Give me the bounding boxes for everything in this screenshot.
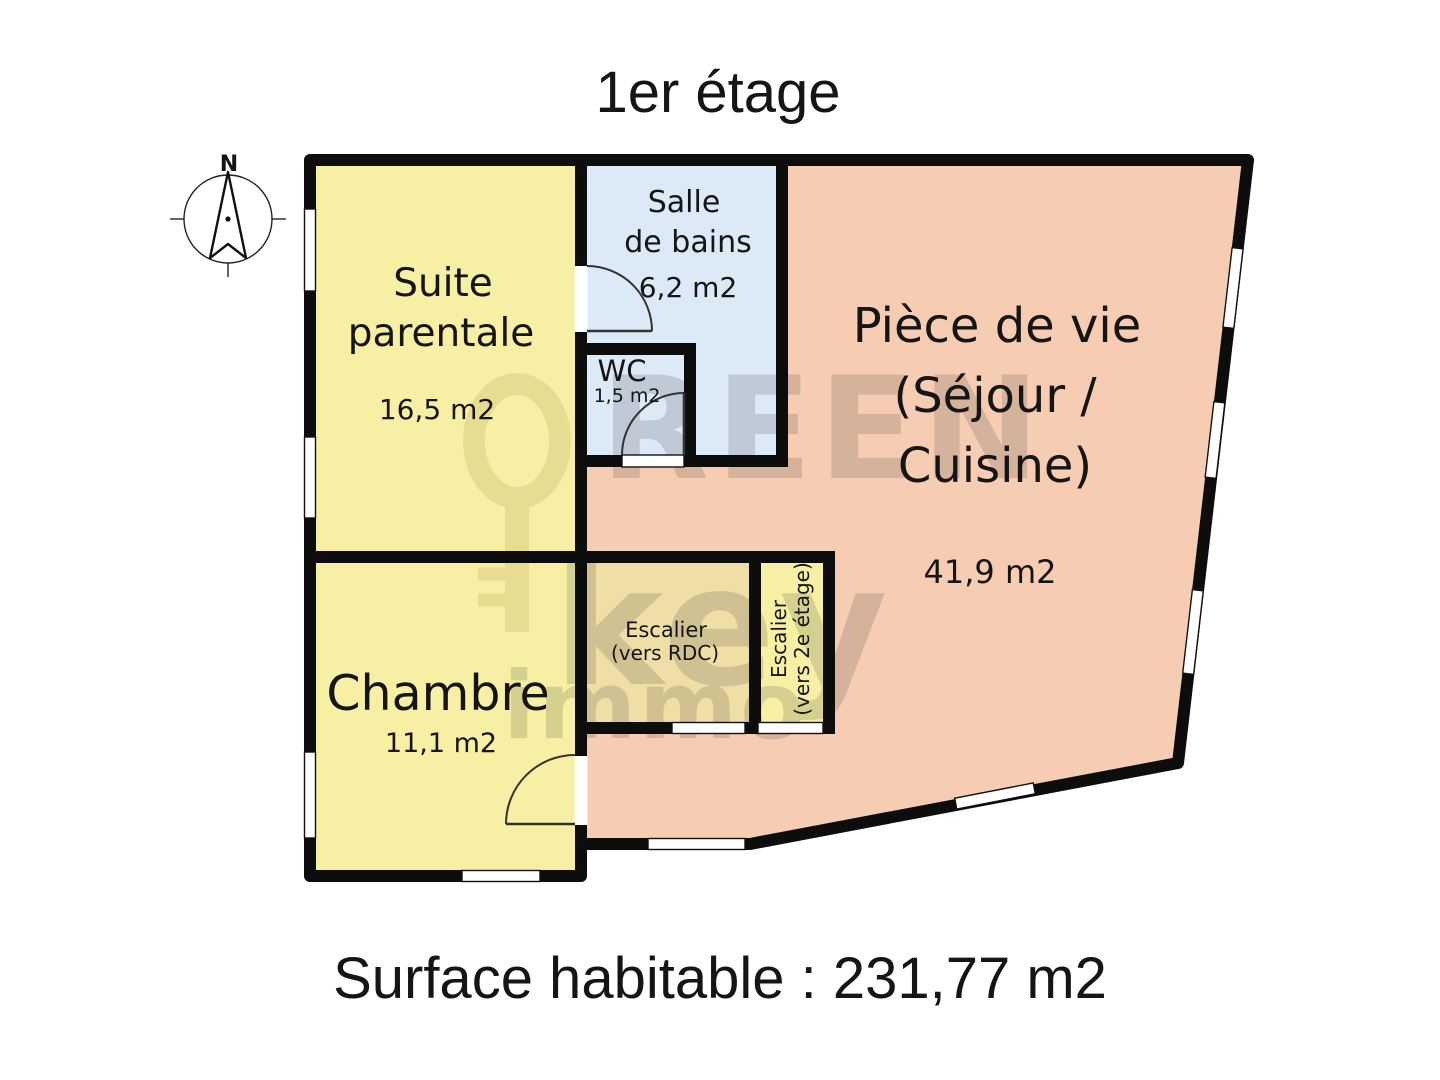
label-chambre-area: 11,1 m2 — [385, 728, 497, 759]
door-gap-salle-de-bains — [575, 266, 588, 332]
label-suite-area: 16,5 m2 — [379, 393, 495, 426]
surface-total-label: Surface habitable : 231,77 m2 — [333, 946, 1107, 1011]
label-escalier-2e-line1: Escalier — [767, 599, 791, 678]
label-suite-line1: Suite — [393, 261, 493, 306]
compass-north-label: N — [220, 152, 238, 177]
window-suite-left-1 — [305, 209, 316, 291]
label-piece-area: 41,9 m2 — [924, 553, 1057, 591]
label-piece-line3: Cuisine) — [898, 438, 1092, 494]
opening-escalier-2e — [758, 723, 823, 734]
compass-center-dot — [225, 216, 230, 221]
compass: N — [170, 152, 286, 277]
label-escalier-2e-line2: (vers 2e étage) — [790, 562, 814, 716]
window-suite-left-2 — [305, 437, 316, 518]
north-arrow-icon — [210, 172, 246, 258]
window-chambre-left — [305, 752, 316, 838]
label-bains-area: 6,2 m2 — [639, 271, 738, 304]
window-chambre-bottom — [462, 871, 540, 882]
label-escalier-rdc-line2: (vers RDC) — [611, 641, 719, 665]
window-piece-bottom — [648, 839, 745, 850]
label-escalier-rdc-line1: Escalier — [625, 618, 707, 642]
floorplan-canvas: REEN key immo — [0, 0, 1440, 1080]
label-piece-line2: (Séjour / — [893, 368, 1097, 424]
opening-escalier-rdc — [672, 723, 745, 734]
page-title: 1er étage — [595, 60, 840, 125]
door-gap-chambre — [575, 756, 588, 825]
label-piece-line1: Pièce de vie — [853, 298, 1141, 354]
floorplan-page: REEN key immo — [0, 0, 1440, 1080]
label-bains-line1: Salle — [648, 185, 721, 220]
label-chambre-name: Chambre — [326, 665, 549, 722]
door-sill-wc — [622, 455, 684, 467]
label-wc-area: 1,5 m2 — [594, 385, 661, 407]
label-wc-name: WC — [598, 354, 647, 388]
label-suite-line2: parentale — [348, 311, 535, 356]
label-bains-line2: de bains — [624, 225, 751, 260]
